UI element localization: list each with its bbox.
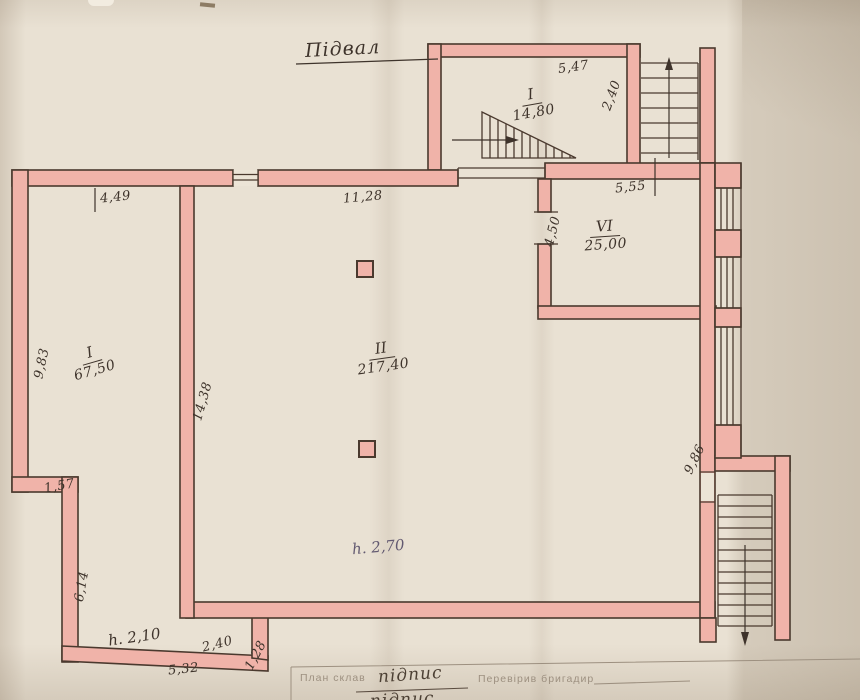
annex-left-wall <box>428 44 441 170</box>
annex-top-wall <box>428 44 640 57</box>
bottom-wall-small-room <box>62 646 268 671</box>
window-pier-3 <box>715 308 741 327</box>
main-bottom-wall <box>186 602 715 618</box>
stairwell-right-wall <box>775 456 790 640</box>
right-inner-wall <box>700 163 715 618</box>
room6-left-wall-lower <box>538 244 551 308</box>
wall-room1-room2 <box>180 186 194 618</box>
top-wall-mid <box>258 170 458 186</box>
annex-stair-arrowhead <box>506 136 519 144</box>
top-wall-right <box>545 163 715 179</box>
annex-opening <box>458 163 545 186</box>
annex-inner-right-wall <box>627 44 640 170</box>
window-pier-4 <box>715 425 741 458</box>
lower-right-staircase <box>718 495 772 646</box>
column-2 <box>359 441 375 457</box>
lower-left-wall <box>62 477 78 662</box>
column-1 <box>357 261 373 277</box>
room-number: VІ <box>588 216 620 238</box>
window-pier-2 <box>715 230 741 257</box>
stair-left-lower-wall <box>700 618 716 642</box>
doorways <box>233 163 715 502</box>
room6-left-wall-upper <box>538 179 551 212</box>
room-label-right: VІ 25,00 <box>567 213 643 255</box>
left-wall <box>12 170 28 492</box>
titleblock-checked-label: Перевірив бригадир <box>478 673 594 685</box>
floorplan-drawing <box>0 0 860 700</box>
dim-top-left: 4,49 <box>99 188 131 206</box>
scanned-floorplan-page: Підвал І 14,80 І 67,50 ІІ 217,40 VІ 25,0… <box>0 0 860 700</box>
room6-bottom-wall <box>538 306 716 319</box>
dim-room6-top: 5,55 <box>614 178 646 196</box>
annex-outer-right-wall <box>700 48 715 163</box>
top-wall-left <box>12 170 233 186</box>
titleblock-made-label: План склав <box>300 672 366 684</box>
plan-title: Підвал <box>304 36 380 62</box>
window-pier-1 <box>715 163 741 188</box>
upper-right-staircase <box>641 57 698 160</box>
down-arrowhead <box>741 632 749 646</box>
dim-bottom-left: 5,32 <box>167 660 199 678</box>
